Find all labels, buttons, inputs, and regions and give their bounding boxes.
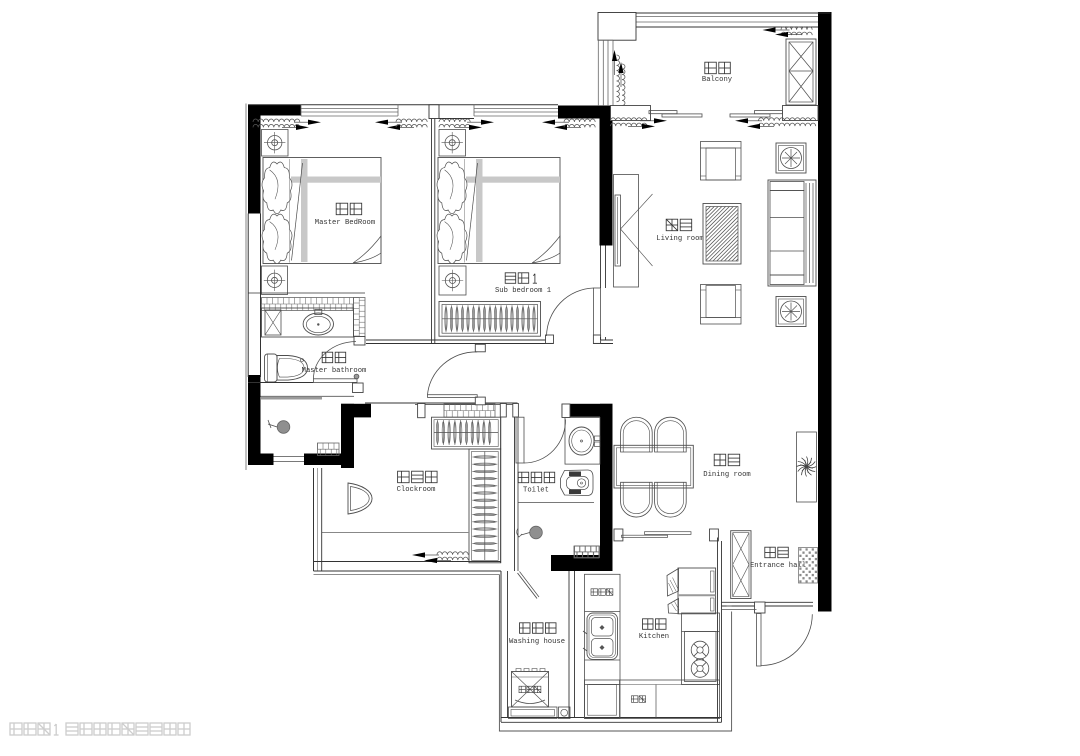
svg-text:Dining room: Dining room	[703, 471, 750, 479]
svg-text:Washing house: Washing house	[509, 638, 565, 646]
svg-text:Balcony: Balcony	[702, 76, 733, 84]
svg-text:Kitchen: Kitchen	[639, 633, 669, 641]
svg-text:Sub bedroom 1: Sub bedroom 1	[495, 287, 551, 295]
svg-text:Master BedRoom: Master BedRoom	[315, 219, 375, 227]
svg-text:Entrance hall: Entrance hall	[750, 562, 806, 570]
svg-text:Clockroom: Clockroom	[397, 486, 436, 494]
svg-text:Toilet: Toilet	[523, 487, 549, 495]
svg-text:Master bathroom: Master bathroom	[302, 367, 367, 375]
svg-text:Living room: Living room	[656, 235, 703, 243]
